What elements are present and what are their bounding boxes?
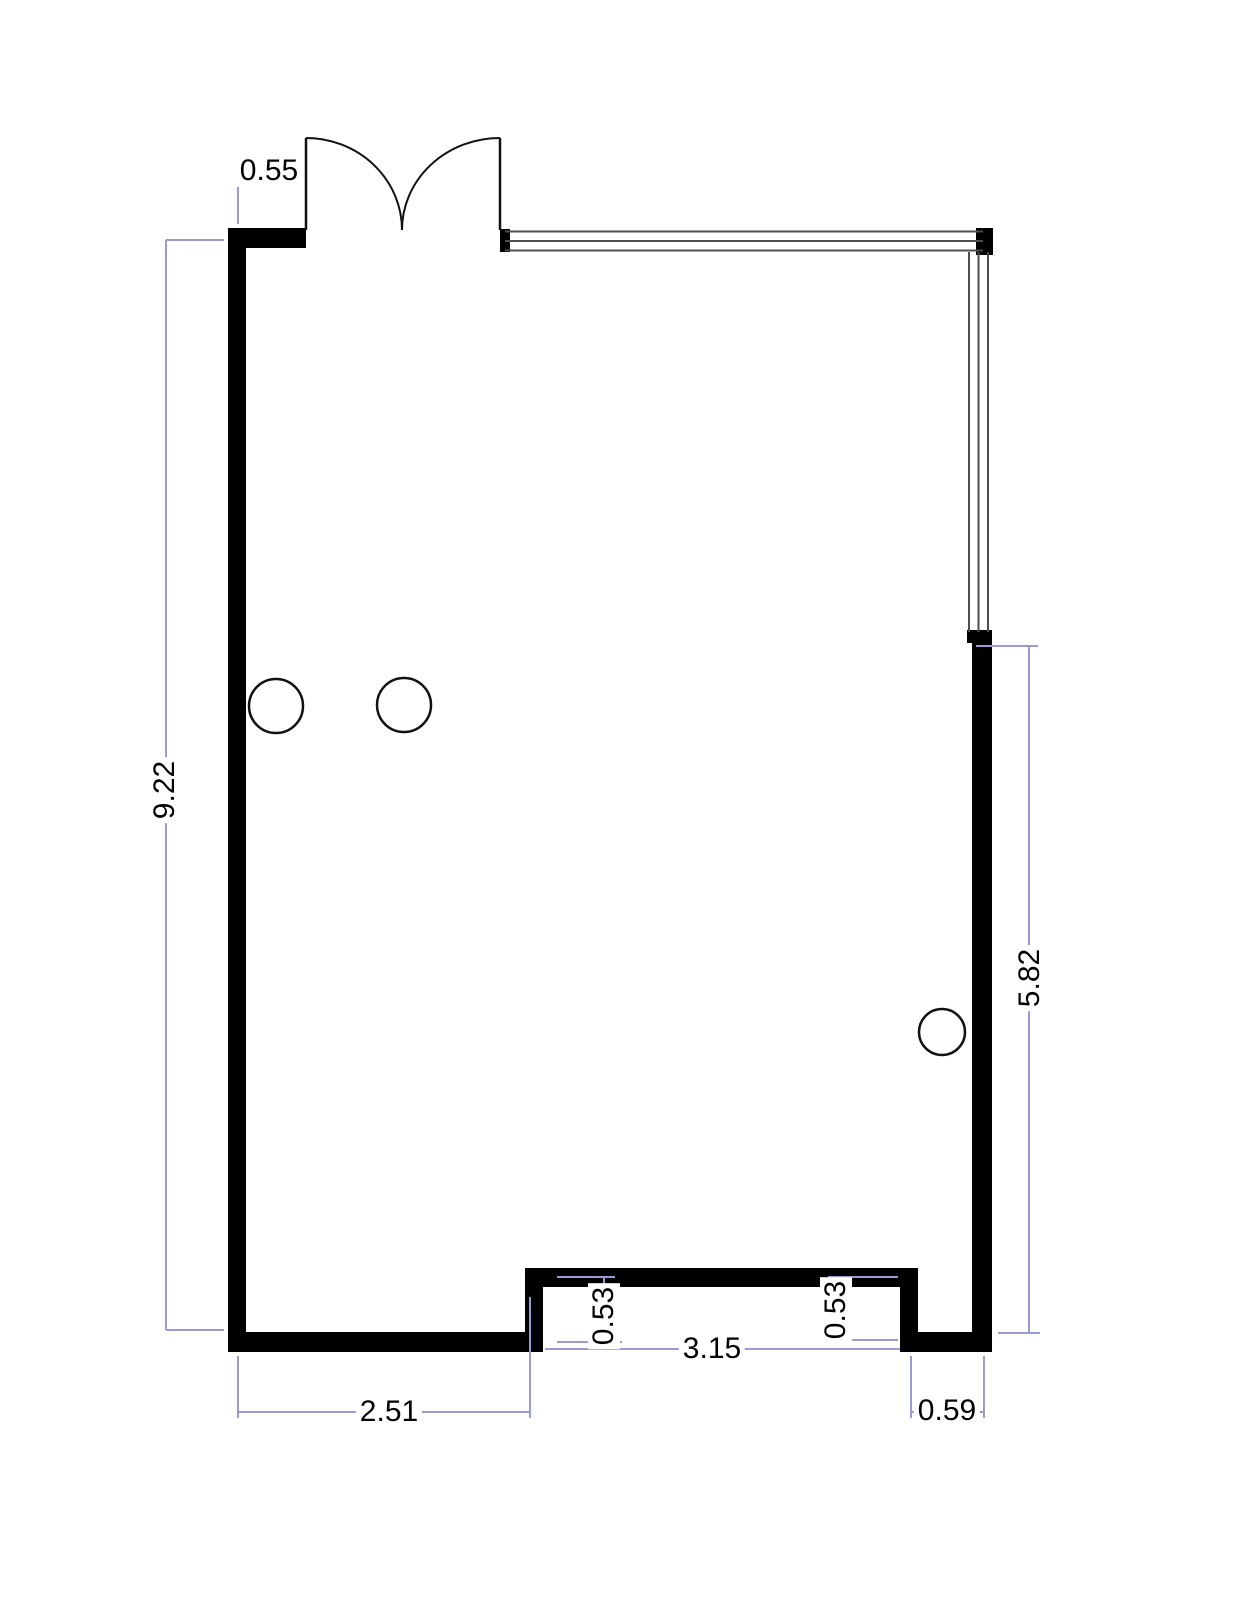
dim-label-step-depth-right: 0.53: [820, 1277, 852, 1343]
floor-plan-canvas: 0.55 9.22 5.82 2.51 3.15 0.59 0.53 0.53: [0, 0, 1236, 1600]
wall-bottom-right: [900, 1332, 992, 1352]
door-swing-arc-left: [306, 138, 402, 230]
dim-label-bottom-right: 0.59: [914, 1395, 980, 1427]
dim-label-right-side: 5.82: [1014, 945, 1046, 1011]
dim-label-opening-width: 3.15: [679, 1333, 745, 1365]
column-circle-2: [377, 678, 431, 732]
window-top-icon: [505, 232, 983, 251]
column-circle-3: [919, 1009, 965, 1055]
window-right-icon: [969, 252, 988, 632]
wall-right: [972, 640, 992, 1352]
dim-label-door-offset: 0.55: [236, 155, 302, 187]
double-door-icon: [306, 138, 500, 230]
floor-plan-drawing: [0, 0, 1236, 1600]
walls: [228, 228, 993, 1352]
column-circle-1: [249, 679, 303, 733]
dim-label-step-depth-left: 0.53: [588, 1283, 620, 1349]
dim-label-bottom-left: 2.51: [356, 1396, 422, 1428]
wall-left: [228, 228, 246, 1352]
wall-bottom-left: [228, 1332, 543, 1352]
dimension-lines: [166, 166, 1040, 1418]
column-symbols: [249, 678, 965, 1055]
wall-top-left-segment: [228, 228, 306, 248]
door-swing-arc-right: [402, 138, 500, 230]
dim-label-left-side: 9.22: [149, 757, 181, 823]
